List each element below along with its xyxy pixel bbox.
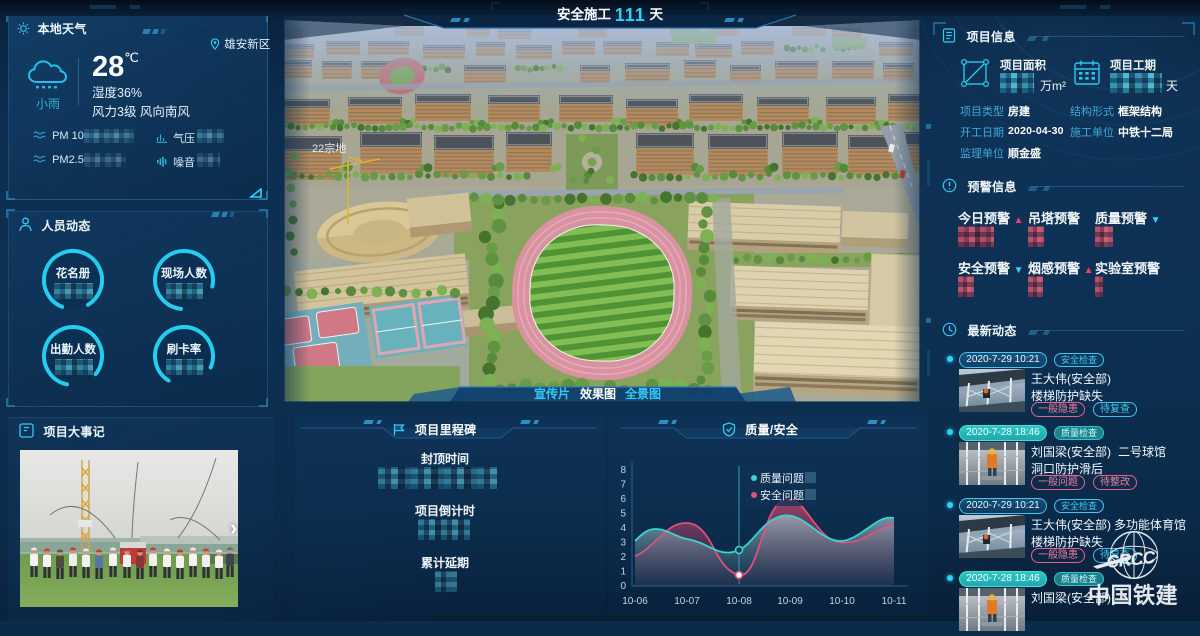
svg-text:6: 6: [620, 494, 626, 505]
svg-text:现场人数: 现场人数: [161, 266, 207, 280]
svg-text:CRCC: CRCC: [1105, 547, 1156, 572]
svg-text:质量问题: 质量问题: [760, 472, 804, 485]
svg-text:10-09: 10-09: [777, 596, 803, 607]
svg-text:10-07: 10-07: [674, 596, 700, 607]
svg-text:全景图: 全景图: [624, 386, 661, 401]
svg-text:10-10: 10-10: [829, 596, 855, 607]
svg-text:效果图: 效果图: [580, 386, 616, 401]
svg-text:2: 2: [620, 552, 626, 563]
svg-text:中国铁建: 中国铁建: [1088, 583, 1178, 608]
svg-text:出勤人数: 出勤人数: [50, 342, 96, 356]
svg-text:10-06: 10-06: [622, 596, 648, 607]
svg-text:宣传片: 宣传片: [534, 386, 570, 401]
svg-text:10-11: 10-11: [882, 596, 907, 607]
svg-text:花名册: 花名册: [56, 266, 91, 280]
svg-text:1: 1: [620, 567, 626, 578]
svg-text:5: 5: [620, 509, 626, 520]
svg-text:22宗地: 22宗地: [312, 141, 346, 155]
svg-text:安全问题: 安全问题: [760, 488, 804, 502]
svg-text:0: 0: [620, 581, 626, 592]
svg-text:8: 8: [620, 465, 626, 476]
svg-text:4: 4: [620, 523, 626, 534]
svg-text:10-08: 10-08: [726, 596, 752, 607]
svg-text:刷卡率: 刷卡率: [167, 342, 202, 356]
svg-text:7: 7: [620, 480, 626, 491]
svg-text:3: 3: [620, 538, 626, 549]
